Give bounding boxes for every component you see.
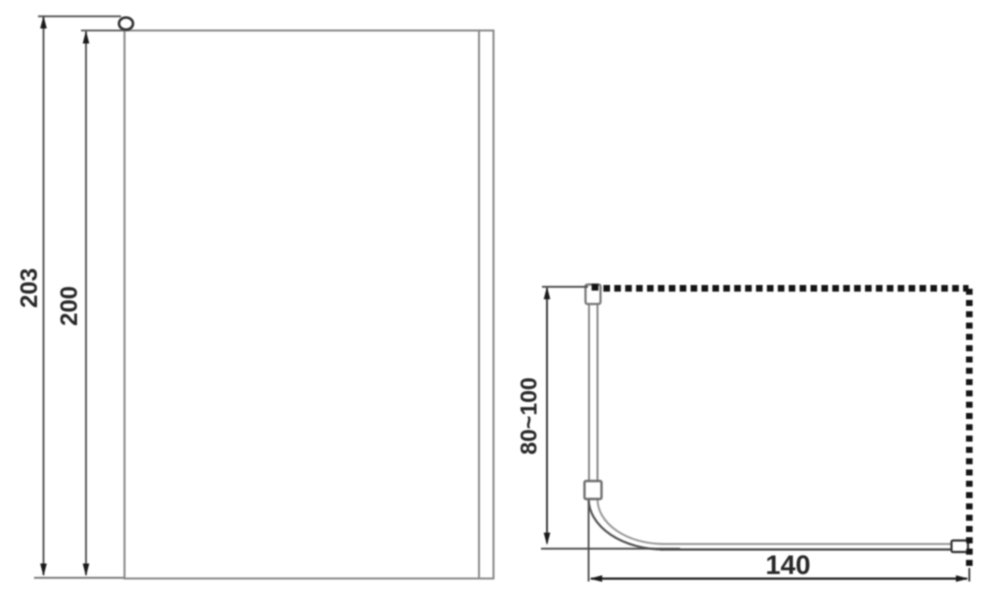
svg-text:80~100: 80~100 <box>516 377 542 454</box>
svg-text:203: 203 <box>16 268 43 308</box>
svg-text:200: 200 <box>56 286 83 326</box>
svg-text:140: 140 <box>765 550 810 580</box>
